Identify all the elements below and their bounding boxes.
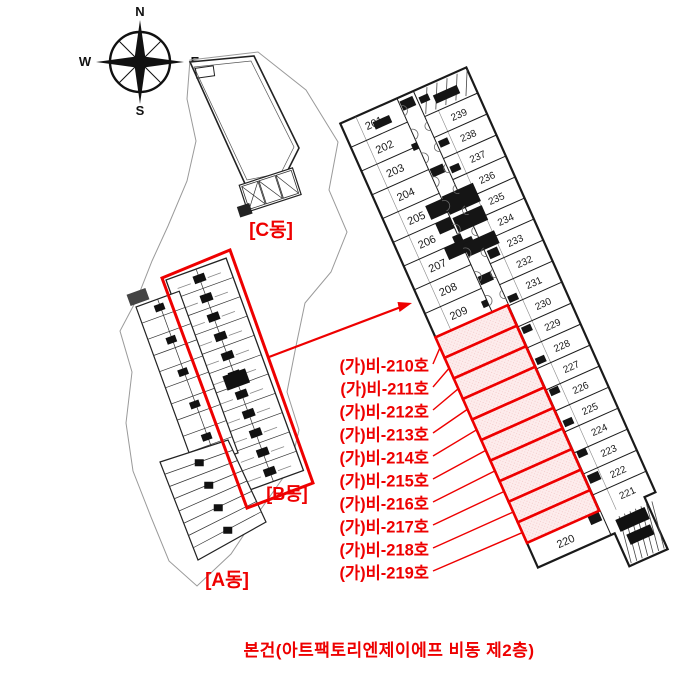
callout-label: (가)비-213호: [339, 426, 429, 445]
callout-label: (가)비-219호: [339, 564, 429, 583]
locator-arrowhead: [398, 302, 413, 312]
building-c-outline: [190, 56, 299, 186]
callout-label: (가)비-217호: [339, 518, 429, 537]
locator-arrow-line: [269, 307, 401, 357]
callout-leader-line: [433, 533, 522, 571]
building-a-core-block: [214, 504, 223, 511]
building-a-label: [A동]: [205, 570, 249, 591]
callout-label: (가)비-211호: [340, 380, 429, 399]
callout-label: (가)비-210호: [339, 357, 429, 376]
callout-leader-line: [433, 450, 486, 479]
callout-label: (가)비-216호: [339, 495, 429, 514]
site-plan: [120, 52, 347, 586]
building-c: [190, 56, 302, 217]
building-a-core-block: [195, 459, 204, 466]
callout-label: (가)비-212호: [339, 403, 429, 422]
building-a-core-block: [223, 527, 232, 534]
compass-west-label: W: [79, 54, 92, 69]
callout-leader-line: [433, 471, 495, 502]
compass-rose: N S W E: [79, 4, 200, 118]
callout-label: (가)비-215호: [339, 472, 429, 491]
compass-hub: [137, 59, 143, 65]
floor-plan-figure: N S W E [: [0, 0, 695, 700]
callout-label: (가)비-214호: [339, 449, 429, 468]
callout-leader-line: [433, 368, 449, 387]
callout-leader-line: [433, 430, 477, 456]
callout-label: (가)비-218호: [339, 541, 429, 560]
callout-leader-line: [433, 409, 467, 433]
building-c-label: [C동]: [249, 220, 293, 241]
compass-north-label: N: [135, 4, 144, 19]
figure-caption: 본건(아트팩토리엔제이에프 비동 제2층): [244, 636, 535, 661]
building-b-label: [B동]: [266, 484, 308, 504]
building-a-core-block: [204, 482, 213, 489]
callout-leader-line: [433, 389, 458, 410]
compass-south-label: S: [136, 103, 145, 118]
locator-arrow: [269, 302, 412, 357]
callout-leader-line: [433, 512, 513, 548]
callout-leader-line: [433, 348, 440, 364]
